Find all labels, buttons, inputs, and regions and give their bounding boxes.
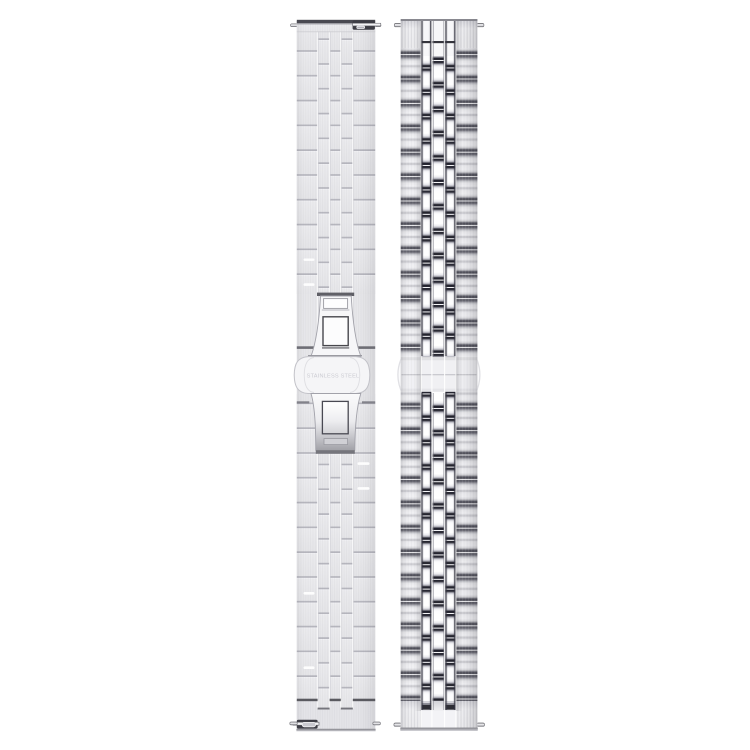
svg-text:STAINLESS STEEL: STAINLESS STEEL bbox=[307, 373, 360, 379]
